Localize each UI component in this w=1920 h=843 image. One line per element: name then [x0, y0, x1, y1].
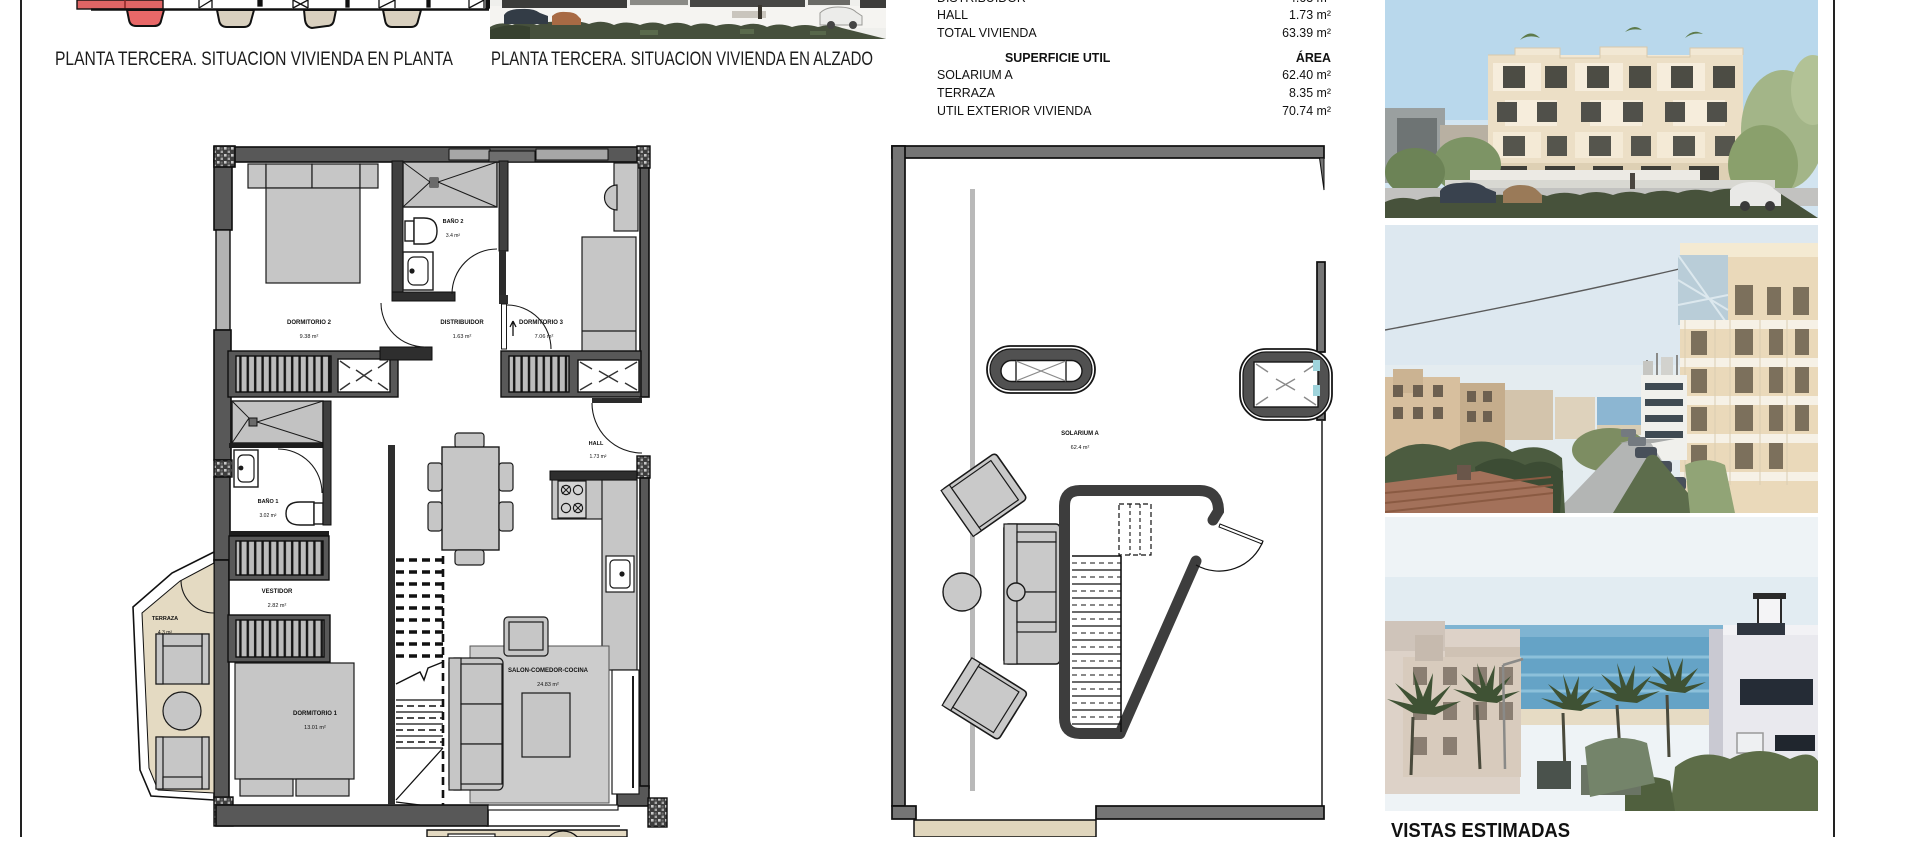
svg-text:62.4 m²: 62.4 m²	[1071, 445, 1090, 451]
svg-text:9.38 m²: 9.38 m²	[300, 334, 319, 340]
svg-text:DORMITORIO 1: DORMITORIO 1	[293, 711, 338, 717]
svg-text:2.82 m²: 2.82 m²	[268, 603, 287, 609]
svg-text:1.63 m²: 1.63 m²	[453, 334, 472, 340]
svg-text:DORMITORIO 2: DORMITORIO 2	[287, 320, 332, 326]
svg-text:TERRAZA: TERRAZA	[152, 616, 178, 622]
svg-text:HALL: HALL	[589, 441, 604, 447]
svg-text:24.83 m²: 24.83 m²	[537, 682, 559, 688]
svg-text:DISTRIBUIDOR: DISTRIBUIDOR	[440, 320, 484, 326]
svg-text:13.01 m²: 13.01 m²	[304, 725, 326, 731]
svg-text:SALON-COMEDOR-COCINA: SALON-COMEDOR-COCINA	[508, 668, 589, 674]
svg-text:1.73 m²: 1.73 m²	[590, 454, 607, 460]
svg-text:3.4 m²: 3.4 m²	[446, 233, 461, 239]
svg-text:3.02 m²: 3.02 m²	[260, 513, 277, 519]
svg-text:BAÑO 1: BAÑO 1	[258, 498, 279, 505]
svg-text:BAÑO 2: BAÑO 2	[443, 218, 464, 225]
svg-text:DORMITORIO 3: DORMITORIO 3	[519, 320, 564, 326]
svg-text:7.06 m²: 7.06 m²	[535, 334, 554, 340]
svg-text:SOLARIUM A: SOLARIUM A	[1061, 431, 1099, 437]
svg-text:VESTIDOR: VESTIDOR	[262, 589, 293, 595]
